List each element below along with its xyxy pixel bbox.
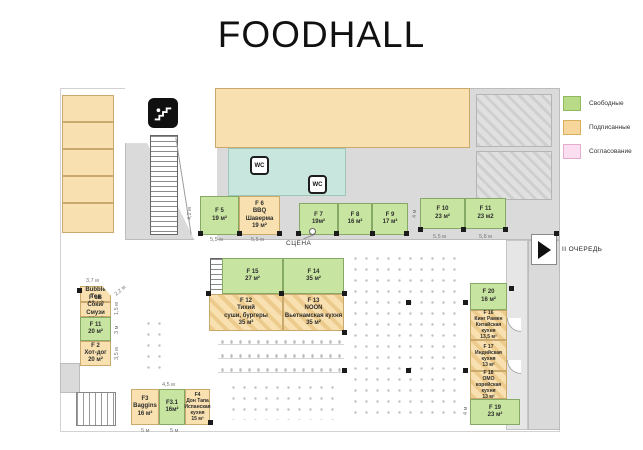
- legend: Свободные Подписанные Согласование: [563, 96, 632, 168]
- phase2-arrow-box: [531, 234, 557, 265]
- stall-f14: F 14 35 м²: [283, 258, 344, 294]
- legend-swatch-signed: [563, 120, 581, 135]
- wc-label: WC: [313, 182, 323, 188]
- column-marker: [77, 288, 82, 293]
- right-wall: [528, 240, 560, 430]
- column-marker: [509, 286, 514, 291]
- legend-row-free: Свободные: [563, 96, 632, 111]
- tenant-block: [62, 203, 114, 233]
- wc-icon: WC: [308, 175, 327, 194]
- stall-f13: F 13 NOON Вьетнамская кухня 35 м²: [283, 294, 344, 331]
- legend-row-signed: Подписанные: [563, 120, 632, 135]
- legend-swatch-approval: [563, 144, 581, 159]
- phase2-label: II ОЧЕРЕДЬ: [562, 246, 602, 253]
- stall-f10: F 10 23 м²: [420, 198, 465, 229]
- stall-f31: F3.1 16м²: [159, 389, 185, 425]
- column-marker: [554, 231, 559, 236]
- column-marker: [406, 368, 411, 373]
- dining-area: [143, 318, 169, 376]
- tenant-block: [62, 95, 114, 122]
- column-marker: [206, 291, 211, 296]
- column-marker: [198, 231, 203, 236]
- staircase: [76, 392, 116, 426]
- arrow-right-icon: [538, 241, 551, 259]
- stall-f19: F 19 23 м²: [470, 399, 520, 425]
- column-marker: [296, 231, 301, 236]
- phase2-hatched-block: [476, 151, 552, 200]
- stage-marker: [309, 228, 316, 235]
- dim-label: 5 м: [141, 428, 149, 434]
- stall-f2: F 2 Хот-дог 20 м²: [80, 341, 111, 366]
- dim-label: 5,8 м: [479, 234, 492, 240]
- dining-area: [350, 253, 462, 421]
- stall-f11: F 11 23 м2: [465, 198, 506, 229]
- stage-label: СЦЕНА: [286, 240, 311, 247]
- stall-f20: F 20 16 м²: [470, 283, 507, 310]
- stall-f17: F 17 Индийская кухня 13 м²: [470, 340, 507, 371]
- dim-label: 5,5 м: [210, 237, 223, 243]
- dim-label: 5 м: [170, 428, 178, 434]
- column-marker: [279, 291, 284, 296]
- dim-label: 4,5 м: [162, 382, 175, 388]
- stall-f1b: F 1B Соки/Смузи 10 м²: [80, 302, 111, 317]
- stall-f18: F 18 OMO корейская кухня 13 м²: [470, 371, 507, 399]
- stall-f8: F 8 16 м²: [338, 203, 372, 235]
- page-title: FOODHALL: [0, 14, 643, 56]
- wc-zone: [228, 148, 346, 196]
- column-marker: [342, 368, 347, 373]
- column-marker: [277, 231, 282, 236]
- legend-label-approval: Согласование: [589, 148, 632, 155]
- phase2-hatched-block: [476, 94, 552, 147]
- column-marker: [461, 227, 466, 232]
- stall-f5: F 5 19 м²: [200, 196, 239, 235]
- stall-f1: F 11 20 м²: [80, 317, 111, 341]
- column-marker: [406, 300, 411, 305]
- stall-f6: F 6 BBQ Шаверма 19 м²: [239, 196, 280, 235]
- column-marker: [418, 227, 423, 232]
- column-marker: [463, 300, 468, 305]
- legend-row-approval: Согласование: [563, 144, 632, 159]
- column-marker: [463, 368, 468, 373]
- escalator-stairs: [150, 135, 178, 235]
- stall-f16: F 16 Кинг Рамен Китайская кухня 13,5 м²: [470, 310, 507, 340]
- tenant-block: [62, 176, 114, 203]
- legend-label-free: Свободные: [589, 100, 624, 107]
- tenant-block: [62, 149, 114, 176]
- dim-label: 4 м: [463, 407, 469, 415]
- column-marker: [342, 330, 347, 335]
- legend-swatch-free: [563, 96, 581, 111]
- escalator-glyph: [152, 102, 174, 124]
- dim-label: 3 м: [114, 326, 120, 334]
- wc-label: WC: [255, 163, 265, 169]
- column-marker: [404, 231, 409, 236]
- dim-label: 3,5 м: [114, 347, 120, 360]
- escalator-icon: [148, 98, 178, 128]
- wc-icon: WC: [250, 156, 269, 175]
- stall-f9: F 9 17 м²: [372, 203, 408, 235]
- legend-label-signed: Подписанные: [589, 124, 630, 131]
- wall-block: [60, 363, 80, 393]
- stall-f4: F4 Дон Тапа Испанская кухня 15 м²: [185, 389, 210, 425]
- stall-f7: F 7 19м²: [299, 203, 338, 235]
- large-tenant-area: [215, 88, 470, 148]
- dim-label: 4 м: [412, 210, 418, 218]
- column-marker: [370, 231, 375, 236]
- column-marker: [237, 231, 242, 236]
- column-marker: [342, 291, 347, 296]
- table-rows: [218, 335, 344, 377]
- column-marker: [334, 231, 339, 236]
- dim-label: 5,5 м: [251, 237, 264, 243]
- dim-label: 3,7 м: [86, 278, 99, 284]
- dim-label: 5,5 м: [433, 234, 446, 240]
- dining-area: [228, 382, 340, 420]
- dim-label: 1,5 м: [114, 302, 120, 315]
- foodhall-floorplan: { "title": "FOODHALL", "legend": { "item…: [0, 0, 643, 450]
- column-marker: [208, 420, 213, 425]
- column-marker: [503, 227, 508, 232]
- dim-label: 4,2 м: [187, 207, 193, 220]
- stall-f15: F 15 27 м²: [222, 258, 283, 294]
- stall-f3: F3 Baggins 16 м²: [131, 389, 159, 425]
- tenant-block: [62, 122, 114, 149]
- stall-f12: F 12 Тихий суши, бургеры 35 м²: [209, 294, 283, 331]
